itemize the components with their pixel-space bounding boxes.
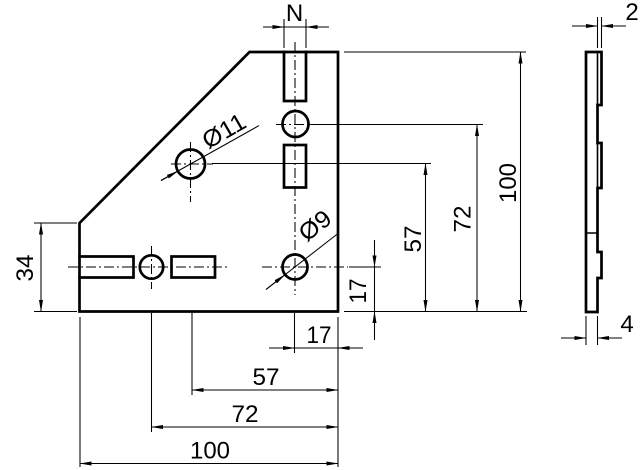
dim-n: N <box>263 0 329 27</box>
dim-right-17: 17 <box>345 240 375 340</box>
slot-top <box>284 52 306 101</box>
dim-side-2: 2 <box>572 0 639 26</box>
dim-bottom-72-label: 72 <box>232 401 259 428</box>
dim-bottom-57: 57 <box>192 364 338 391</box>
side-inner-edges <box>587 54 598 234</box>
dim-bottom-17: 17 <box>269 322 363 349</box>
side-view: 2 4 <box>561 0 639 345</box>
dim-bottom-17-label: 17 <box>307 322 332 349</box>
hole-d11-label: Ø11 <box>198 108 251 154</box>
hole-d9-label: Ø9 <box>294 205 337 247</box>
dim-bottom-72: 72 <box>152 401 339 428</box>
dim-34-label: 34 <box>12 255 39 282</box>
dim-n-label: N <box>286 0 303 27</box>
dim-right-17-label: 17 <box>345 279 372 304</box>
dim-right-57: 57 <box>400 164 427 312</box>
dim-bottom-100-label: 100 <box>190 438 230 465</box>
front-view: N 34 17 57 72 100 <box>12 0 527 467</box>
drawing-canvas: N 34 17 57 72 100 <box>0 0 643 470</box>
technical-drawing: N 34 17 57 72 100 <box>0 0 643 470</box>
dim-right-72-label: 72 <box>450 206 477 233</box>
dim-side-4-label: 4 <box>620 311 633 338</box>
dim-left-34: 34 <box>12 223 41 312</box>
dim-side-2-label: 2 <box>625 0 638 26</box>
plate-outline <box>80 52 339 312</box>
extension-lines <box>34 19 527 467</box>
side-extension-lines <box>586 17 602 345</box>
dim-bottom-100: 100 <box>80 438 338 465</box>
dim-right-100: 100 <box>495 52 522 312</box>
dim-bottom-57-label: 57 <box>253 364 280 391</box>
dim-right-100-label: 100 <box>495 163 522 203</box>
side-profile-outline <box>586 52 602 312</box>
dim-right-72: 72 <box>450 125 478 312</box>
dim-right-57-label: 57 <box>400 226 427 253</box>
